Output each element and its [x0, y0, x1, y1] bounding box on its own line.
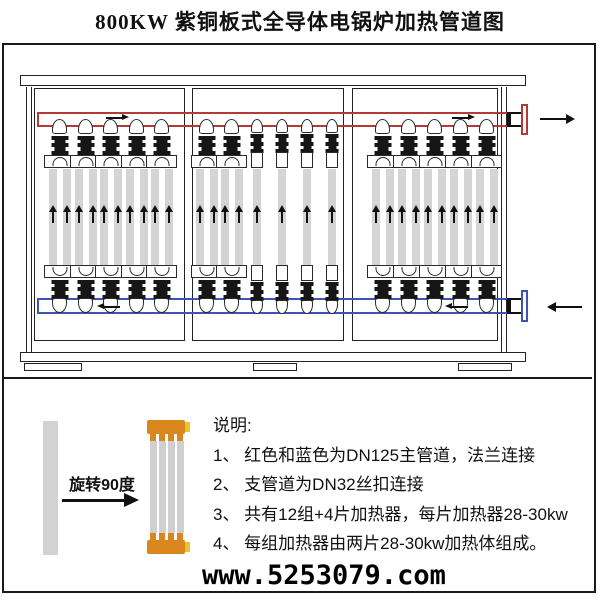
heater-stub	[159, 433, 165, 441]
boiler-foot	[24, 363, 82, 371]
note-item: 3、 共有12组+4片加热器，每片加热器28-30kw	[213, 500, 588, 530]
page-title: 800KW 紫铜板式全导体电锅炉加热管道图	[0, 6, 600, 36]
page: 800KW 紫铜板式全导体电锅炉加热管道图 旋转90度	[0, 0, 600, 601]
heater-tube	[168, 441, 175, 533]
note-item: 1、 红色和蓝色为DN125主管道，法兰连接	[213, 441, 588, 471]
boiler-left-wall	[26, 87, 32, 352]
heater-cap-bottom	[147, 540, 185, 554]
inlet-flange-blue	[521, 290, 528, 322]
note-item: 4、 每组加热器由两片28-30kw加热体组成。	[213, 529, 588, 559]
boiler-base	[20, 352, 526, 362]
section-divider	[4, 377, 592, 379]
heater-tube	[159, 441, 166, 533]
rotate-arrow-icon	[62, 499, 124, 502]
rotate-label: 旋转90度	[56, 471, 148, 495]
supply-pipe-red	[37, 112, 507, 127]
flow-arrow-right-icon	[452, 117, 468, 119]
heater-tube	[177, 441, 184, 533]
notes-block: 说明: 1、 红色和蓝色为DN125主管道，法兰连接 2、 支管道为DN32丝扣…	[213, 411, 588, 559]
heater-cap-top	[147, 420, 185, 434]
flow-arrow-left-icon	[452, 306, 468, 308]
heater-tube	[150, 441, 157, 533]
note-item: 2、 支管道为DN32丝扣连接	[213, 470, 588, 500]
boiler-foot	[253, 363, 297, 371]
heater-element-front-view	[147, 420, 197, 554]
heater-stub	[177, 433, 183, 441]
heater-stub	[168, 433, 174, 441]
flow-arrow-left-icon	[104, 306, 120, 308]
outlet-flange-red	[521, 104, 528, 135]
heater-terminal-tab	[185, 422, 190, 432]
notes-title: 说明:	[213, 411, 588, 441]
heater-stub	[150, 433, 156, 441]
outlet-arrow-icon	[540, 118, 566, 120]
boiler-foot	[458, 363, 512, 371]
boiler-lid	[20, 75, 526, 86]
watermark: www.5253079.com	[202, 560, 446, 591]
flow-arrow-right-icon	[106, 117, 122, 119]
pipe-stub	[511, 298, 521, 314]
inlet-arrow-icon	[556, 306, 582, 308]
pipe-stub	[511, 112, 521, 127]
heater-terminal-tab	[185, 542, 190, 552]
